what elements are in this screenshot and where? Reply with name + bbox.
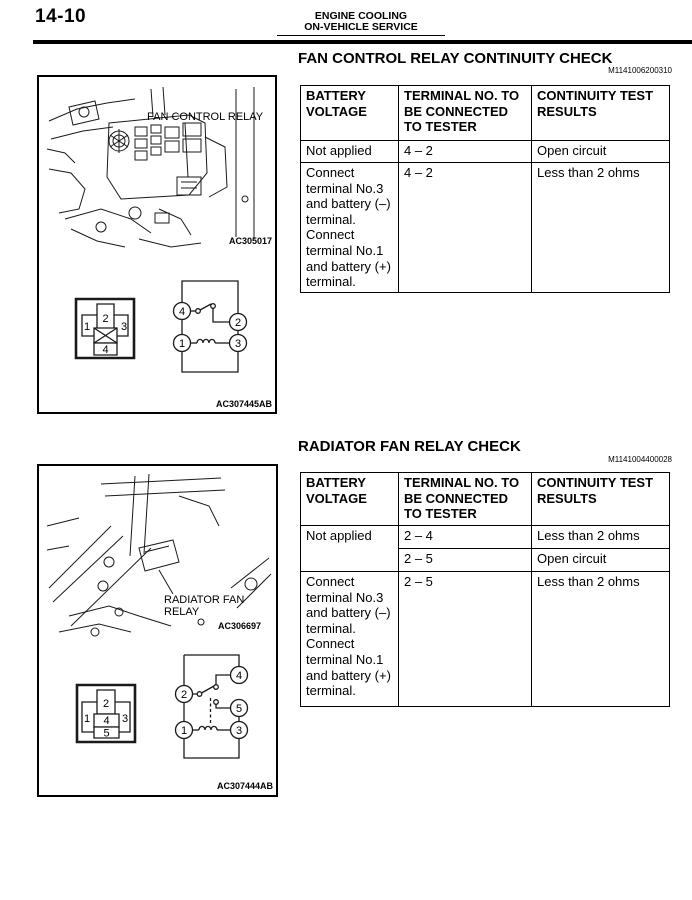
- callout-leader-line: [185, 123, 188, 177]
- relay-connector-diagram: 2 1 3 4: [76, 299, 134, 358]
- col-header-results: CONTINUITY TEST RESULTS: [532, 473, 670, 526]
- section1-ref-code: M1141006200310: [608, 66, 672, 75]
- cell-terminals: 2 – 5: [399, 549, 532, 572]
- cell-terminals: 4 – 2: [399, 163, 532, 293]
- connector-pin-mid: 4: [103, 715, 109, 727]
- page-number: 14-10: [35, 6, 86, 28]
- circuit-pin-coil-out: 3: [236, 725, 242, 737]
- section2-title: RADIATOR FAN RELAY CHECK: [298, 438, 521, 455]
- relay-circuit-diagram: 2 4 5 1 3: [176, 655, 248, 758]
- cell-result: Less than 2 ohms: [532, 163, 670, 293]
- cell-voltage: Connect terminal No.3 and battery (–) te…: [301, 163, 399, 293]
- radiator-fan-relay-figure: RADIATOR FAN RELAY AC306697 2 1 3 4 5: [37, 464, 278, 797]
- fan-control-relay-illustration: FAN CONTROL RELAY AC305017 2 1 3 4: [39, 77, 275, 412]
- header-rule: [33, 40, 692, 44]
- radiator-fan-relay-illustration: RADIATOR FAN RELAY AC306697 2 1 3 4 5: [39, 466, 276, 795]
- col-header-results: CONTINUITY TEST RESULTS: [532, 86, 670, 141]
- manual-page: 14-10 ENGINE COOLING ON-VEHICLE SERVICE …: [0, 0, 692, 900]
- fan-control-relay-figure: FAN CONTROL RELAY AC305017 2 1 3 4: [37, 75, 277, 414]
- table-row: Connect terminal No.3 and battery (–) te…: [301, 572, 670, 707]
- callout-label: FAN CONTROL RELAY: [147, 111, 264, 123]
- figure-code-label: AC307445AB: [216, 399, 273, 409]
- cell-result: Less than 2 ohms: [532, 572, 670, 707]
- circuit-pin-contact-b: 5: [236, 703, 242, 715]
- cell-result: Less than 2 ohms: [532, 526, 670, 549]
- art-code-label: AC305017: [229, 236, 272, 246]
- relay-circuit-diagram: 4 2 1 3: [174, 281, 247, 372]
- col-header-battery-voltage: BATTERY VOLTAGE: [301, 473, 399, 526]
- connector-pin-left: 1: [84, 321, 90, 333]
- section2-ref-code: M1141004400028: [608, 455, 672, 464]
- engine-bay-art: [47, 474, 271, 636]
- circuit-pin-switch-in: 2: [181, 689, 187, 701]
- connector-pin-right: 3: [122, 713, 128, 725]
- cell-result: Open circuit: [532, 141, 670, 163]
- cell-result: Open circuit: [532, 549, 670, 572]
- connector-pin-right: 3: [121, 321, 127, 333]
- circuit-pin-coil-in: 1: [181, 725, 187, 737]
- cell-voltage: Not applied: [301, 526, 399, 572]
- cell-terminals: 2 – 4: [399, 526, 532, 549]
- callout-leader-line: [159, 570, 173, 594]
- cell-terminals: 2 – 5: [399, 572, 532, 707]
- col-header-terminals: TERMINAL NO. TO BE CONNECTED TO TESTER: [399, 86, 532, 141]
- radiator-fan-relay-table: BATTERY VOLTAGE TERMINAL NO. TO BE CONNE…: [300, 472, 670, 707]
- circuit-pin-contact-a: 4: [236, 670, 242, 682]
- table-row: Not applied 2 – 4 Less than 2 ohms: [301, 526, 670, 549]
- circuit-pin-switch-in: 4: [179, 306, 185, 318]
- callout-label-line1: RADIATOR FAN: [164, 594, 244, 606]
- header-subtitle: ON-VEHICLE SERVICE: [277, 22, 445, 33]
- fan-control-relay-table: BATTERY VOLTAGE TERMINAL NO. TO BE CONNE…: [300, 85, 670, 293]
- cell-terminals: 4 – 2: [399, 141, 532, 163]
- connector-pin-bottom: 4: [102, 344, 108, 356]
- relay-connector-diagram: 2 1 3 4 5: [77, 685, 135, 742]
- figure-code-label: AC307444AB: [217, 781, 274, 791]
- cell-voltage: Connect terminal No.3 and battery (–) te…: [301, 572, 399, 707]
- connector-pin-top: 2: [102, 313, 108, 325]
- col-header-battery-voltage: BATTERY VOLTAGE: [301, 86, 399, 141]
- section1-title: FAN CONTROL RELAY CONTINUITY CHECK: [298, 50, 612, 67]
- page-header: ENGINE COOLING ON-VEHICLE SERVICE: [277, 11, 445, 36]
- connector-pin-bottom: 5: [103, 728, 109, 740]
- cell-voltage: Not applied: [301, 141, 399, 163]
- connector-pin-top: 2: [103, 698, 109, 710]
- circuit-pin-coil-out: 3: [235, 338, 241, 350]
- table-row: Not applied 4 – 2 Open circuit: [301, 141, 670, 163]
- connector-pin-left: 1: [84, 713, 90, 725]
- callout-label-line2: RELAY: [164, 606, 200, 618]
- circuit-pin-switch-out: 2: [235, 317, 241, 329]
- circuit-pin-coil-in: 1: [179, 338, 185, 350]
- table-row: Connect terminal No.3 and battery (–) te…: [301, 163, 670, 293]
- art-code-label: AC306697: [218, 621, 261, 631]
- col-header-terminals: TERMINAL NO. TO BE CONNECTED TO TESTER: [399, 473, 532, 526]
